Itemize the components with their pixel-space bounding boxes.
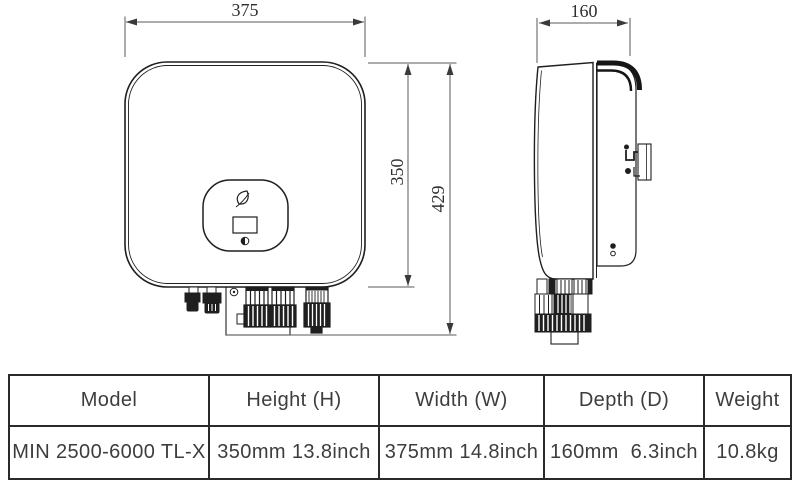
- front-display-panel: [203, 180, 288, 251]
- value-height: 350mm 13.8inch: [209, 426, 379, 479]
- header-height: Height (H): [209, 375, 379, 426]
- value-width: 375mm 14.8inch: [379, 426, 544, 479]
- front-dc-connectors: [185, 287, 221, 313]
- dim-depth-160: 160: [539, 1, 628, 23]
- manual-page: 375 350 429: [0, 0, 799, 495]
- value-weight: 10.8kg: [704, 426, 791, 479]
- dim-height-429: 429: [428, 64, 450, 334]
- dim-label-375: 375: [232, 0, 259, 20]
- side-dimensions: 160: [537, 1, 630, 63]
- dim-label-350: 350: [387, 159, 407, 186]
- spec-table-value-row: MIN 2500-6000 TL-X 350mm 13.8inch 375mm …: [9, 426, 791, 479]
- header-depth: Depth (D): [544, 375, 704, 426]
- dim-height-350: 350: [387, 64, 408, 286]
- side-view-drawing: [534, 63, 651, 345]
- spec-table: Model Height (H) Width (W) Depth (D) Wei…: [8, 374, 792, 480]
- front-cable-gland-1: [244, 287, 270, 327]
- dimension-diagram: 375 350 429: [0, 0, 799, 372]
- dim-label-429: 429: [428, 186, 448, 213]
- side-back-chassis: [597, 63, 640, 266]
- dim-label-160: 160: [571, 1, 598, 21]
- side-front-cover: [534, 63, 596, 280]
- front-ac-connector: [304, 287, 330, 333]
- dim-width-375: 375: [126, 0, 364, 22]
- value-model: MIN 2500-6000 TL-X: [9, 426, 209, 479]
- value-depth: 160mm 6.3inch: [544, 426, 704, 479]
- spec-table-header-row: Model Height (H) Width (W) Depth (D) Wei…: [9, 375, 791, 426]
- header-weight: Weight: [704, 375, 791, 426]
- side-connectors: [535, 279, 592, 344]
- header-width: Width (W): [379, 375, 544, 426]
- front-cable-gland-2: [270, 287, 296, 327]
- header-model: Model: [9, 375, 209, 426]
- front-body: [125, 62, 365, 287]
- front-view-drawing: [125, 62, 365, 335]
